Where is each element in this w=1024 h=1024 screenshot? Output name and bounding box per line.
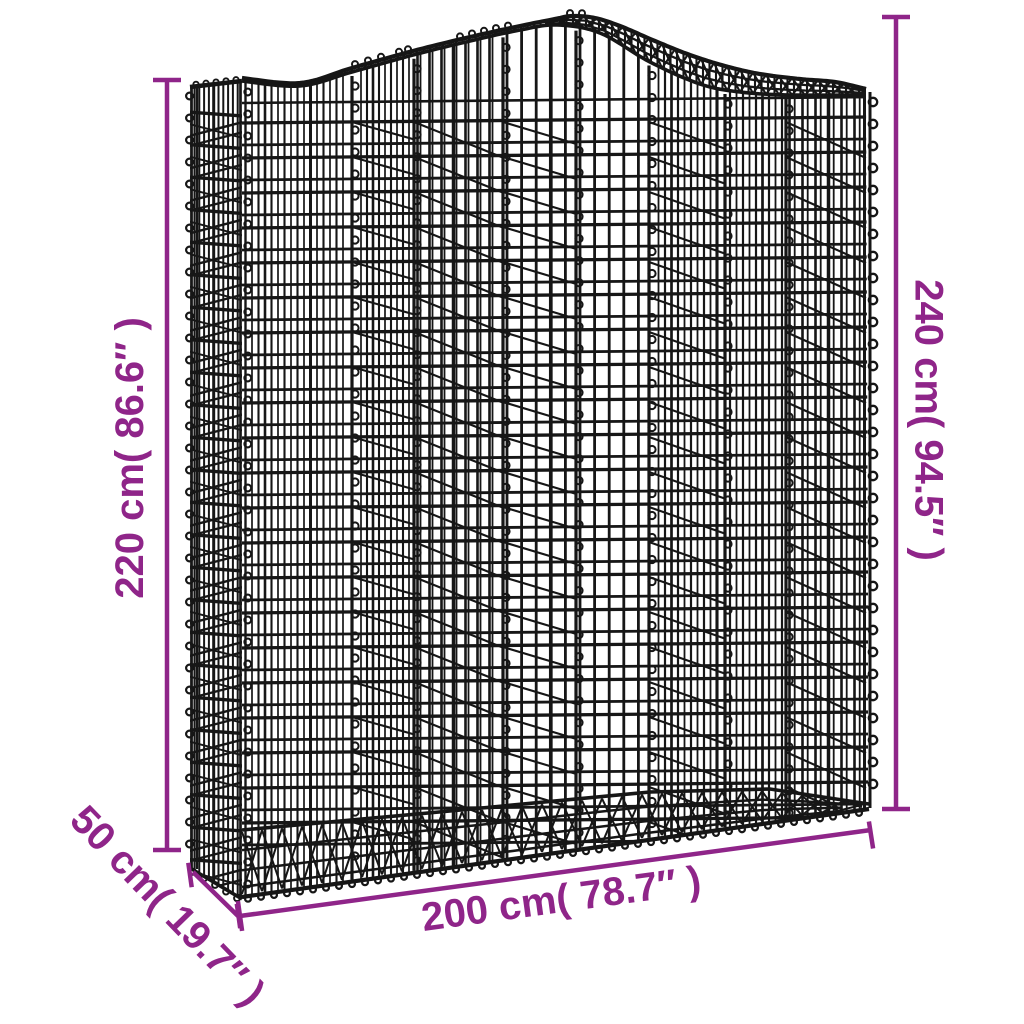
svg-text:220 cm( 86.6″ ): 220 cm( 86.6″ ) — [108, 317, 152, 599]
svg-text:240 cm( 94.5″ ): 240 cm( 94.5″ ) — [907, 279, 951, 561]
